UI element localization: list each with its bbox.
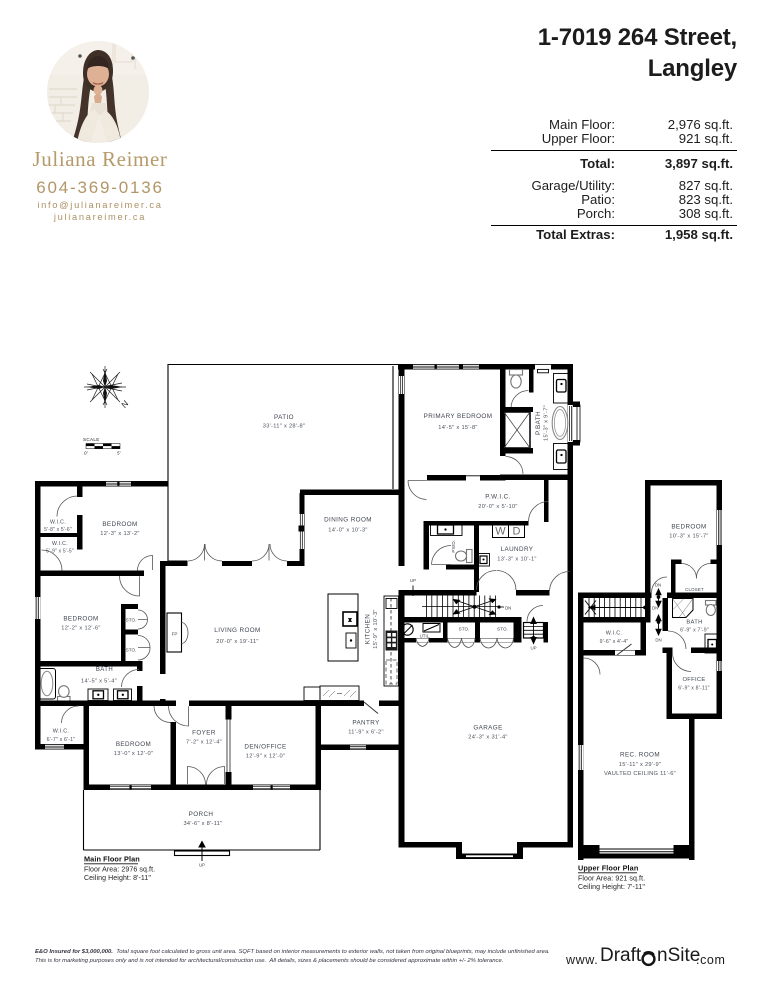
svg-text:12'-2" x 12'-6": 12'-2" x 12'-6" xyxy=(61,626,100,632)
svg-text:P.BATH: P.BATH xyxy=(535,411,542,435)
svg-text:OFFICE: OFFICE xyxy=(682,677,705,683)
svg-text:9'-6" x 4'-4": 9'-6" x 4'-4" xyxy=(600,639,629,645)
svg-text:13'-0" x 12'-0": 13'-0" x 12'-0" xyxy=(114,751,153,757)
svg-text:6'-7" x 6'-1": 6'-7" x 6'-1" xyxy=(47,737,76,743)
svg-text:DN: DN xyxy=(652,606,658,611)
svg-text:5'-8" x 5'-6": 5'-8" x 5'-6" xyxy=(44,527,72,533)
svg-text:W: W xyxy=(495,526,506,538)
svg-text:UP: UP xyxy=(530,646,536,651)
svg-text:DEN/OFFICE: DEN/OFFICE xyxy=(244,744,286,751)
svg-text:Floor Area: 921 sq.ft.: Floor Area: 921 sq.ft. xyxy=(578,876,645,883)
svg-text:P.W.I.C.: P.W.I.C. xyxy=(485,494,510,501)
svg-text:UP: UP xyxy=(199,863,205,868)
svg-text:34'-6" x 8'-11": 34'-6" x 8'-11" xyxy=(183,821,222,827)
svg-text:14'-5" x 5'-4": 14'-5" x 5'-4" xyxy=(81,679,117,685)
svg-text:DN: DN xyxy=(655,583,661,588)
svg-text:FP: FP xyxy=(172,632,178,637)
svg-text:REC. ROOM: REC. ROOM xyxy=(620,752,660,759)
svg-text:PATIO: PATIO xyxy=(274,414,294,421)
svg-text:PANTRY: PANTRY xyxy=(352,720,380,727)
svg-text:14'-0" x 10'-3": 14'-0" x 10'-3" xyxy=(328,528,367,534)
svg-text:BEDROOM: BEDROOM xyxy=(116,741,151,748)
svg-text:VAULTED CEILING 11'-6": VAULTED CEILING 11'-6" xyxy=(604,771,676,777)
svg-text:15'-11" x 29'-9": 15'-11" x 29'-9" xyxy=(619,762,662,768)
svg-text:UTIL.: UTIL. xyxy=(420,634,431,639)
svg-text:24'-3" x 31'-4": 24'-3" x 31'-4" xyxy=(468,735,507,741)
svg-text:33'-11" x 28'-8": 33'-11" x 28'-8" xyxy=(263,424,306,430)
svg-text:FOYER: FOYER xyxy=(192,730,216,737)
svg-text:N: N xyxy=(119,398,131,410)
svg-text:BEDROOM: BEDROOM xyxy=(63,616,98,623)
svg-text:BEDROOM: BEDROOM xyxy=(102,521,137,528)
svg-text:15'-9" x 10'-3": 15'-9" x 10'-3" xyxy=(373,609,379,648)
svg-text:20'-0" x 19'-11": 20'-0" x 19'-11" xyxy=(216,639,259,645)
svg-text:12'-9" x 12'-0": 12'-9" x 12'-0" xyxy=(246,754,285,760)
svg-text:Ceiling Height: 7'-11": Ceiling Height: 7'-11" xyxy=(578,884,645,891)
svg-text:PRIMARY BEDROOM: PRIMARY BEDROOM xyxy=(424,413,493,420)
svg-text:13'-3" x 10'-1": 13'-3" x 10'-1" xyxy=(497,557,536,563)
svg-text:SCALE: SCALE xyxy=(83,437,100,442)
svg-text:10'-3" x 15'-7": 10'-3" x 15'-7" xyxy=(669,534,708,540)
svg-text:14'-5" x 15'-8": 14'-5" x 15'-8" xyxy=(438,425,477,431)
svg-text:STO.: STO. xyxy=(126,648,137,653)
svg-text:20'-0" x 5'-10": 20'-0" x 5'-10" xyxy=(478,504,517,510)
svg-text:BATH: BATH xyxy=(686,620,702,626)
svg-text:6'-9" x 7'-9": 6'-9" x 7'-9" xyxy=(680,628,709,634)
svg-text:STO.: STO. xyxy=(497,627,508,632)
svg-text:DN: DN xyxy=(505,605,511,610)
svg-text:W.I.C.: W.I.C. xyxy=(52,541,68,547)
svg-text:PWD.: PWD. xyxy=(451,539,456,552)
svg-text:D: D xyxy=(513,526,521,538)
svg-text:7'-2" x 12'-4": 7'-2" x 12'-4" xyxy=(186,740,222,746)
svg-text:W.I.C.: W.I.C. xyxy=(53,729,69,735)
svg-text:Main Floor Plan: Main Floor Plan xyxy=(84,855,140,864)
svg-text:LIVING ROOM: LIVING ROOM xyxy=(214,627,260,634)
svg-text:KITCHEN: KITCHEN xyxy=(365,614,372,644)
svg-text:W.I.C.: W.I.C. xyxy=(606,631,622,637)
svg-text:BATH: BATH xyxy=(96,667,113,673)
svg-text:5': 5' xyxy=(117,451,121,456)
svg-text:DINING ROOM: DINING ROOM xyxy=(324,517,372,524)
svg-text:Upper Floor Plan: Upper Floor Plan xyxy=(578,864,638,873)
svg-text:UP: UP xyxy=(410,578,416,583)
svg-text:15'-3" x 9'-7": 15'-3" x 9'-7" xyxy=(544,405,550,441)
svg-text:x: x xyxy=(349,618,352,624)
svg-text:PORCH: PORCH xyxy=(189,811,214,818)
svg-text:GARAGE: GARAGE xyxy=(473,725,502,732)
svg-text:12'-3" x 13'-2": 12'-3" x 13'-2" xyxy=(100,531,139,537)
svg-text:LAUNDRY: LAUNDRY xyxy=(501,546,534,553)
svg-text:6'-9" x 8'-11": 6'-9" x 8'-11" xyxy=(678,686,709,692)
svg-text:STO.: STO. xyxy=(459,627,470,632)
svg-text:W.I.C.: W.I.C. xyxy=(50,520,66,526)
svg-text:BEDROOM: BEDROOM xyxy=(671,524,706,531)
svg-text:Floor Area: 2976 sq.ft.: Floor Area: 2976 sq.ft. xyxy=(84,867,155,874)
svg-text:11'-9" x 6'-2": 11'-9" x 6'-2" xyxy=(348,730,384,736)
svg-text:CLOSET: CLOSET xyxy=(685,587,704,592)
svg-text:STO.: STO. xyxy=(126,618,137,623)
svg-text:DN: DN xyxy=(655,638,661,643)
svg-text:0': 0' xyxy=(84,451,88,456)
svg-text:Ceiling Height: 8'-11": Ceiling Height: 8'-11" xyxy=(84,875,151,882)
